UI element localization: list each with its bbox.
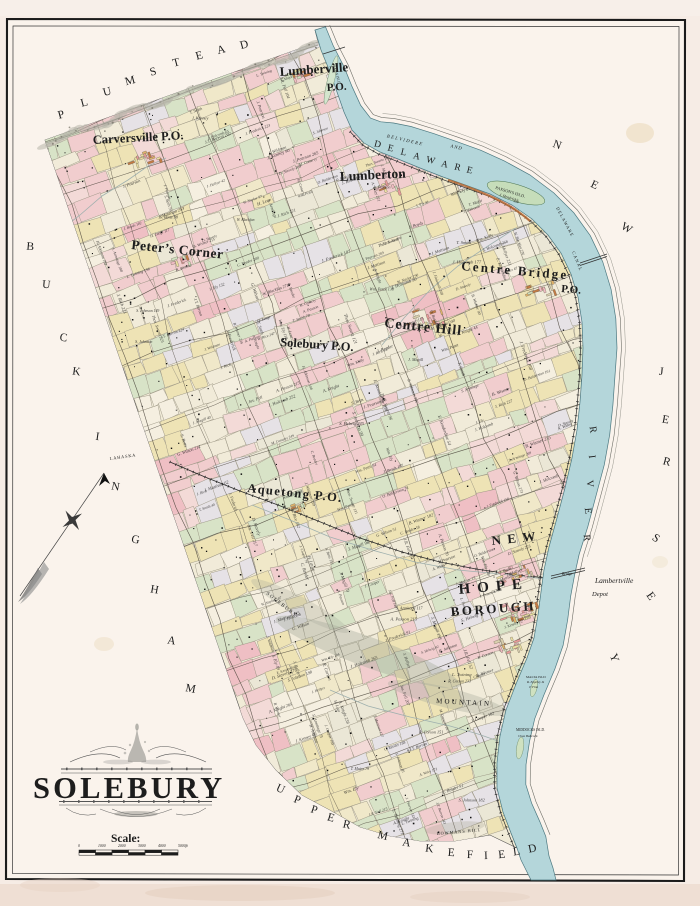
svg-text:P.O.: P.O. [561, 283, 582, 297]
svg-text:MIDDOCKS ISLD.: MIDDOCKS ISLD. [516, 728, 545, 732]
svg-text:R. Corson 151: R. Corson 151 [418, 729, 443, 734]
svg-text:R. Corson 233: R. Corson 233 [447, 679, 471, 683]
svg-text:2000: 2000 [118, 844, 126, 848]
svg-text:P.O.: P.O. [326, 81, 347, 94]
svg-text:1000: 1000 [98, 844, 106, 848]
svg-text:SOLEBURY: SOLEBURY [33, 771, 225, 805]
svg-text:5000ft: 5000ft [178, 844, 189, 848]
svg-text:S. Johnson 149: S. Johnson 149 [136, 309, 159, 313]
svg-text:S. Helwig 245: S. Helwig 245 [339, 421, 365, 426]
svg-text:S. Johnson 182: S. Johnson 182 [459, 798, 486, 803]
svg-text:T. Major 79: T. Major 79 [351, 767, 369, 771]
svg-text:R. Eppeley &: R. Eppeley & [526, 680, 545, 684]
svg-text:MALTA ISLD: MALTA ISLD [526, 675, 546, 679]
svg-text:S. Betts 98: S. Betts 98 [160, 214, 179, 219]
svg-text:L. Twining: L. Twining [451, 672, 472, 677]
svg-text:Scale:: Scale: [111, 833, 140, 845]
svg-text:Chas Babcock: Chas Babcock [518, 734, 538, 738]
svg-text:I: I [484, 850, 488, 862]
svg-text:E: E [498, 849, 506, 862]
svg-text:E: E [582, 507, 593, 514]
svg-text:F: F [467, 849, 474, 861]
svg-text:Bridge: Bridge [562, 572, 573, 576]
svg-text:J. Magill: J. Magill [408, 357, 424, 362]
svg-text:T. Smith: T. Smith [456, 240, 471, 245]
svg-text:4000: 4000 [158, 844, 166, 848]
svg-text:J. Kenney: J. Kenney [192, 116, 209, 121]
svg-text:S. Armitage 117: S. Armitage 117 [396, 605, 424, 610]
svg-text:A. Paxson: A. Paxson [372, 184, 390, 189]
svg-text:E: E [447, 847, 455, 859]
svg-text:0: 0 [78, 844, 80, 848]
svg-text:Depot: Depot [591, 591, 608, 598]
svg-text:W. Blackfan: W. Blackfan [237, 218, 255, 222]
svg-text:M: M [184, 682, 196, 696]
svg-text:B: B [26, 241, 35, 254]
svg-text:A. Paxson 215: A. Paxson 215 [389, 616, 417, 621]
svg-text:Lambertville: Lambertville [594, 576, 634, 585]
svg-text:T. Finn: T. Finn [529, 685, 539, 689]
svg-text:3000: 3000 [138, 844, 146, 848]
svg-text:R: R [581, 534, 592, 542]
svg-text:S. Johnson: S. Johnson [135, 339, 152, 344]
